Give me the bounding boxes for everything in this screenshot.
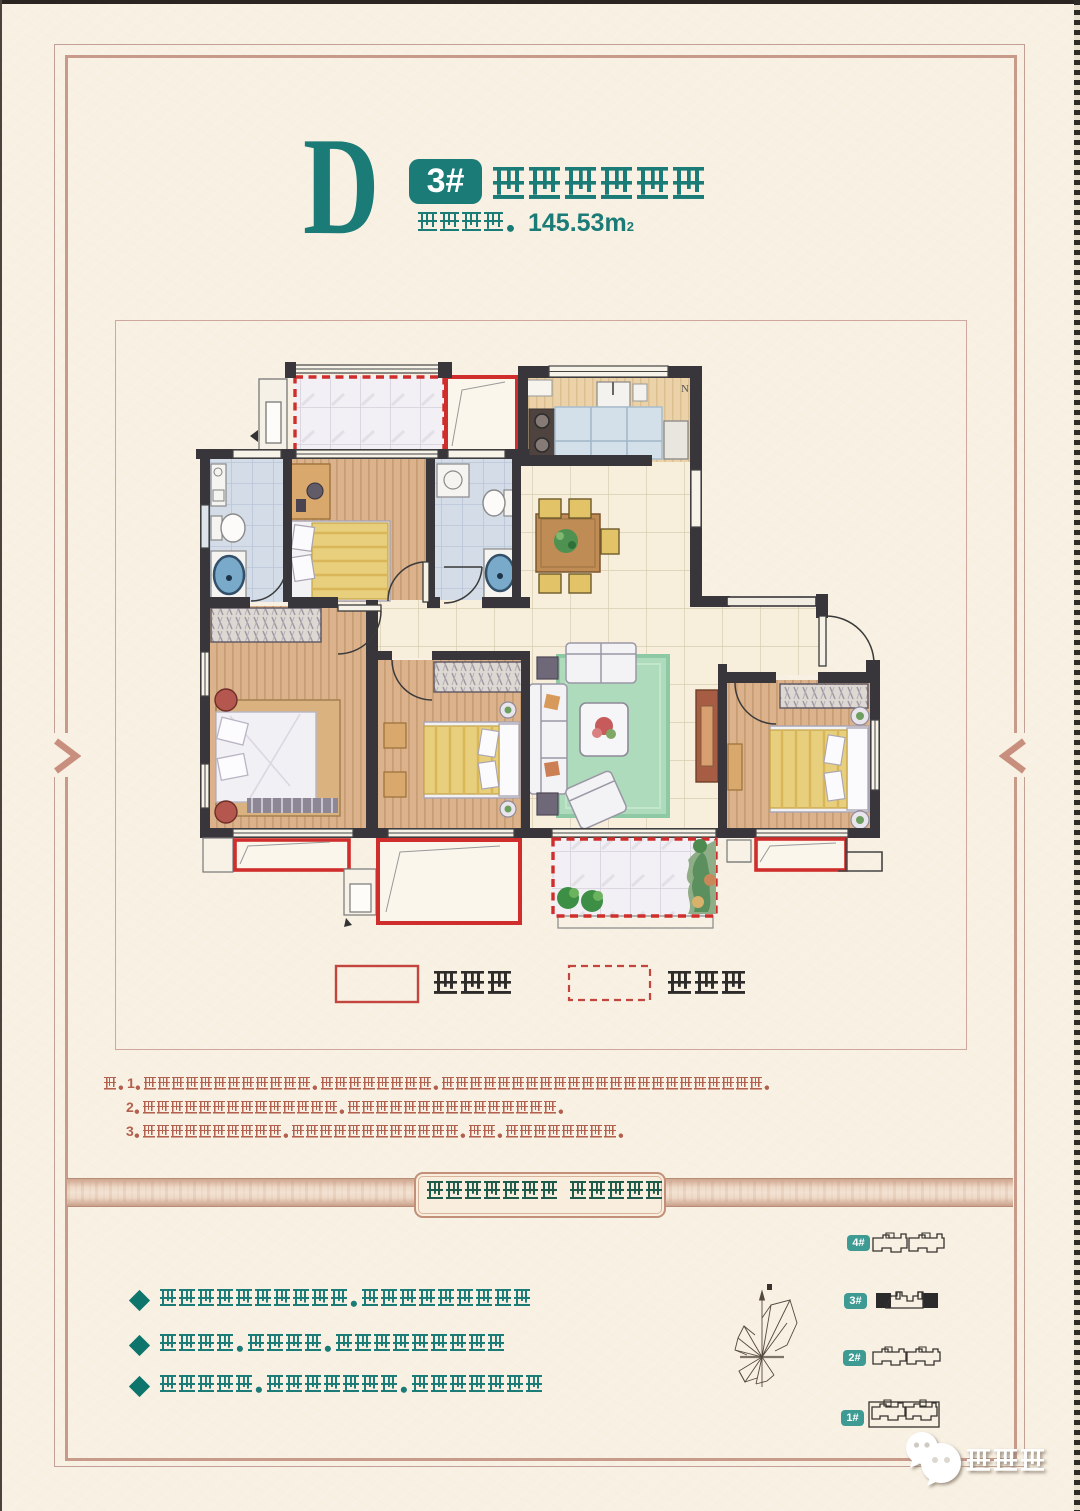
svg-text:N: N xyxy=(681,383,689,395)
